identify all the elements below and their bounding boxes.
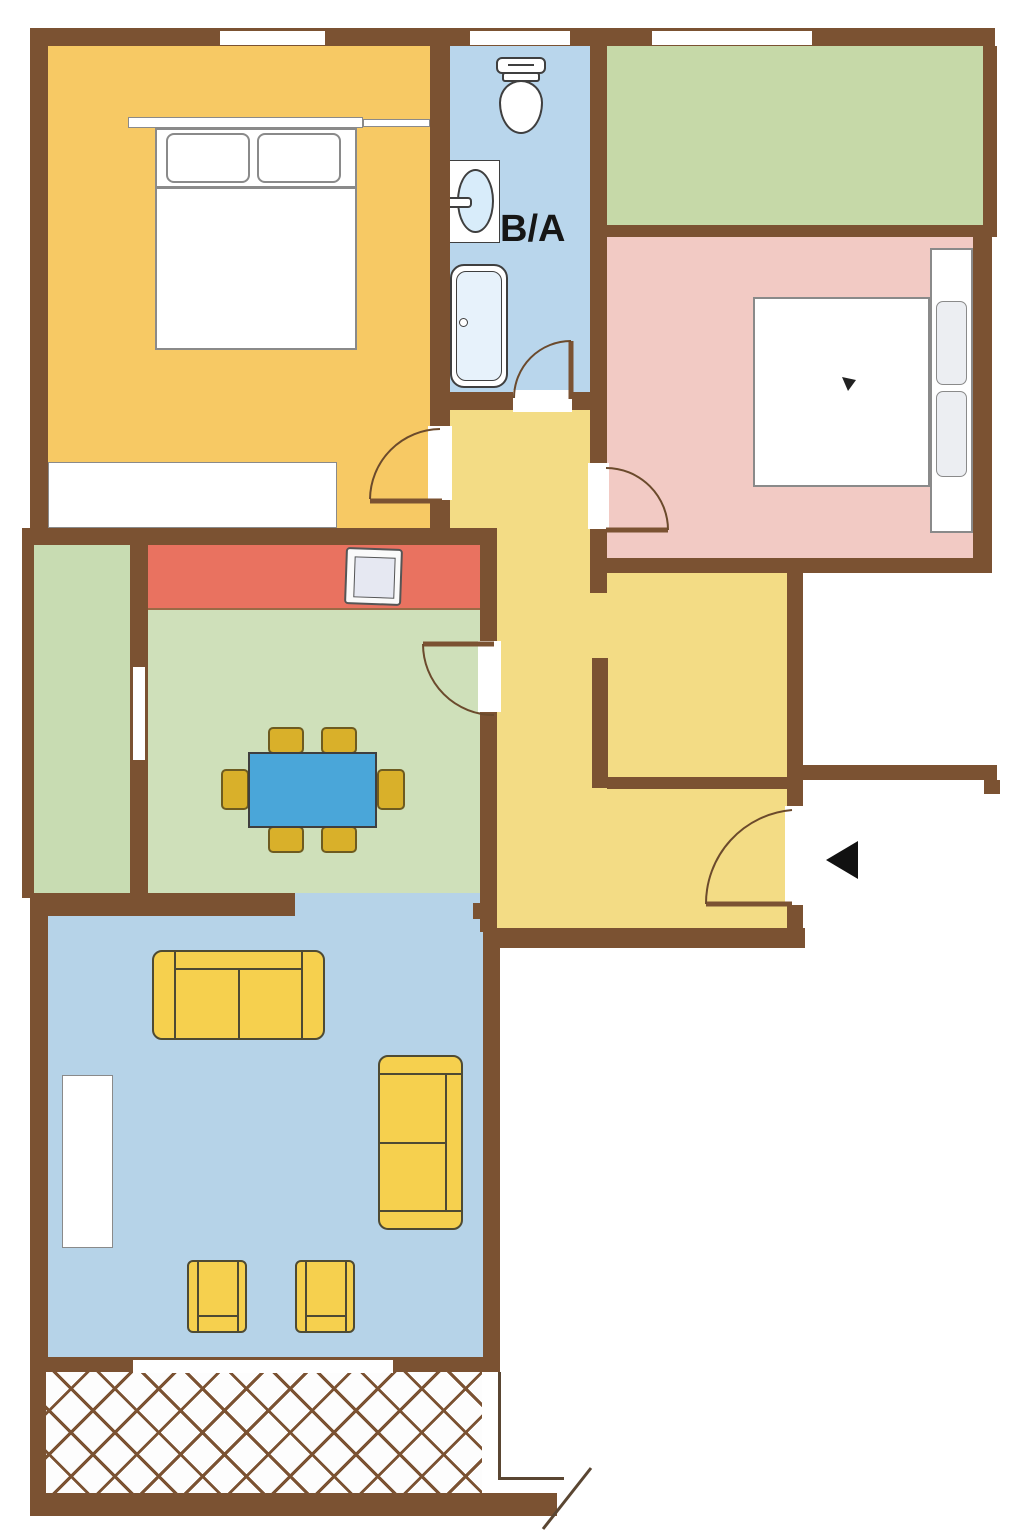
room-kitchen-strip bbox=[148, 545, 483, 610]
bed2-mattress bbox=[753, 297, 930, 487]
sofa-right-cushion-divider bbox=[380, 1142, 445, 1144]
wall-loggia-left bbox=[22, 528, 34, 898]
wall-outer-left-upper bbox=[30, 28, 48, 545]
wall-outer-left-lower bbox=[30, 893, 48, 1372]
dining-chair-bottom-1 bbox=[268, 826, 304, 853]
wall-dining-right bbox=[480, 543, 497, 932]
wall-bedroom2-bottom bbox=[592, 558, 992, 573]
window-bathroom bbox=[470, 31, 570, 45]
wall-nook-top bbox=[802, 765, 997, 780]
tv-stand bbox=[62, 1075, 113, 1248]
sofa-right-back-line bbox=[445, 1073, 447, 1212]
armchair-1-front-line bbox=[197, 1315, 239, 1317]
room-hallway-upper bbox=[450, 410, 590, 528]
toilet-tank-line bbox=[508, 64, 534, 66]
dining-chair-top-1 bbox=[268, 727, 304, 754]
wall-notch-living-top-right bbox=[473, 903, 483, 919]
door-gap-bathroom bbox=[513, 390, 572, 412]
room-top-right bbox=[607, 46, 983, 225]
sofa-top-armrest-left-line bbox=[174, 952, 176, 1038]
wall-vestibule-stub bbox=[592, 658, 608, 788]
balcony-boundary-vertical-line bbox=[498, 1372, 501, 1478]
wall-living-right bbox=[483, 930, 500, 1372]
dining-chair-bottom-2 bbox=[321, 826, 357, 853]
bed1-wardrobe bbox=[48, 462, 337, 528]
bed2-pillow-top bbox=[936, 301, 967, 385]
bed1-pillow-left bbox=[166, 133, 250, 183]
room-balcony-hatch bbox=[46, 1372, 482, 1493]
sofa-right-armrest-bottom-line bbox=[380, 1210, 461, 1212]
armchair-1-arm-right bbox=[237, 1262, 239, 1331]
floor-plan: B/A bbox=[0, 0, 1024, 1536]
wall-bedroom2-right bbox=[973, 237, 992, 573]
balcony-boundary-horizontal-line bbox=[498, 1477, 564, 1480]
wall-roomtr-right bbox=[983, 46, 997, 237]
dining-table bbox=[248, 752, 377, 828]
bed1-shelf bbox=[128, 117, 363, 128]
wall-bedroom1-bottom bbox=[30, 528, 497, 545]
stove-inner bbox=[353, 556, 395, 598]
door-gap-bedroom2 bbox=[588, 463, 609, 529]
window-room-top-right bbox=[652, 31, 812, 45]
door-gap-bedroom1 bbox=[428, 426, 452, 500]
armchair-2-front-line bbox=[305, 1315, 347, 1317]
bathroom-label: B/A bbox=[500, 208, 565, 251]
room-hallway-entry bbox=[607, 572, 787, 932]
entrance-arrow-icon bbox=[826, 841, 858, 879]
window-loggia-dining bbox=[133, 667, 145, 760]
bed2-pillow-bottom bbox=[936, 391, 967, 477]
armchair-2-arm-right bbox=[345, 1262, 347, 1331]
dining-chair-right bbox=[377, 769, 405, 810]
wall-hall-bottom bbox=[483, 928, 805, 948]
bed1-shelf-right bbox=[363, 119, 430, 127]
sofa-top-cushion-divider bbox=[238, 968, 240, 1038]
window-living-balcony bbox=[133, 1360, 393, 1373]
bed1-pillow-right bbox=[257, 133, 341, 183]
bathtub-drain bbox=[459, 318, 468, 327]
room-loggia bbox=[34, 545, 130, 893]
wall-vestibule-bottom bbox=[607, 777, 788, 789]
wall-nook-stub bbox=[984, 780, 1000, 794]
door-gap-dining bbox=[478, 641, 501, 712]
wall-balcony-bottom bbox=[30, 1493, 557, 1516]
dining-chair-left bbox=[221, 769, 249, 810]
window-bedroom1 bbox=[220, 31, 325, 45]
wall-dining-bottom bbox=[30, 893, 295, 916]
dining-chair-top-2 bbox=[321, 727, 357, 754]
armchair-1-arm-left bbox=[197, 1262, 199, 1331]
armchair-2-arm-left bbox=[305, 1262, 307, 1331]
sofa-top-armrest-right-line bbox=[301, 952, 303, 1038]
sofa-right-armrest-top-line bbox=[380, 1073, 461, 1075]
wall-roomtr-bedroom2-divider bbox=[607, 225, 983, 237]
door-gap-entry bbox=[785, 806, 805, 905]
stove bbox=[344, 547, 403, 606]
bed1-mattress bbox=[155, 187, 357, 350]
